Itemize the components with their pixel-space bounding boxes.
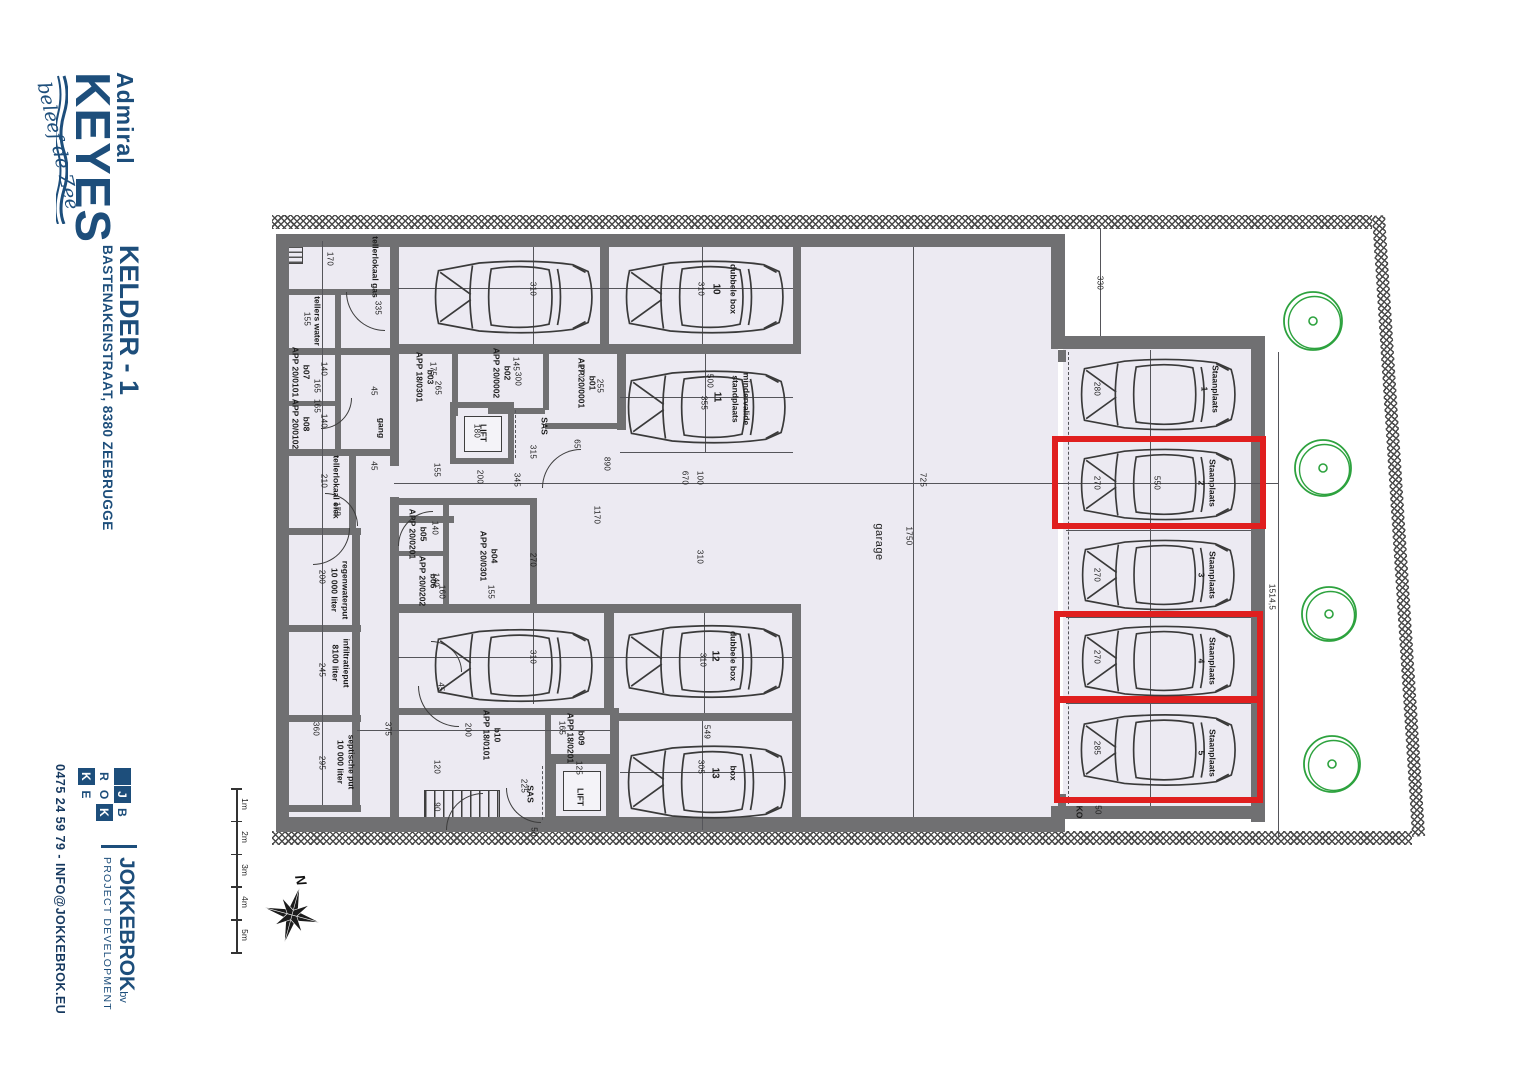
room-label: dubbele box — [728, 631, 739, 681]
wall — [618, 713, 794, 721]
dimension-label: 180 — [473, 424, 482, 438]
dimension-line — [1278, 352, 1279, 838]
wall — [604, 613, 614, 711]
dimension-label: 255 — [596, 379, 605, 393]
dimension-label: 355 — [700, 396, 709, 410]
dimension-label: 170 — [577, 364, 586, 378]
dimension-label: 170 — [326, 252, 335, 266]
room-label: tellerlokaal gas — [370, 236, 381, 297]
wall — [610, 708, 619, 832]
dimension-label: 375 — [384, 722, 393, 736]
room-label: b05 APP 20/0201 — [407, 509, 428, 559]
parking-space-label: Staanplaats 4 — [1196, 637, 1217, 685]
room-label: infiltratieput 8100 liter — [330, 638, 351, 687]
dimension-label: 90 — [433, 802, 442, 812]
wall — [452, 354, 458, 416]
room-label: 10 — [709, 283, 722, 294]
room-label: b09 APP 18/0201 — [565, 713, 586, 763]
tree-icon — [1299, 584, 1359, 649]
dimension-label: 285 — [1093, 741, 1102, 755]
dimension-label: 200 — [318, 570, 327, 584]
tree-icon — [1301, 733, 1363, 800]
parking-space-label: Staanplaats 5 — [1196, 729, 1217, 777]
dashed-line — [542, 766, 543, 820]
dimension-label: 500 — [706, 374, 715, 388]
property-line-hatch-bottom — [272, 831, 1412, 845]
dimension-label: 305 — [697, 760, 706, 774]
dimension-label: 200 — [476, 470, 485, 484]
dimension-label: 345 — [513, 473, 522, 487]
room-label: b03 APP 18/0301 — [414, 352, 435, 402]
dimension-label: 210 — [320, 474, 329, 488]
dimension-label: 1750 — [905, 527, 914, 546]
dimension-label: 155 — [487, 585, 496, 599]
dimension-label: 310 — [529, 650, 538, 664]
dimension-line — [1066, 530, 1251, 531]
property-line-hatch-top — [272, 215, 1372, 229]
dimension-label: 1170 — [593, 506, 602, 524]
parking-space-label: Staanplaats 1 — [1199, 365, 1220, 413]
room-label: regenwaterput 10 000 liter — [329, 561, 350, 620]
wall — [394, 604, 801, 613]
dimension-label: 165 — [558, 721, 567, 735]
dimension-label: 280 — [1093, 382, 1102, 396]
room-label: b08 APP 20/0102 — [290, 399, 311, 449]
room-label: garage — [871, 523, 885, 560]
wall — [1051, 234, 1065, 344]
wall — [1058, 350, 1066, 362]
room-label: gang — [376, 418, 387, 438]
dimension-label: 155 — [433, 463, 442, 477]
dimension-label: 45 — [437, 682, 446, 692]
car-icon — [430, 253, 600, 341]
dimension-label: 725 — [919, 473, 928, 487]
room-label: 12 — [708, 650, 721, 661]
dimension-label: 65 — [573, 439, 582, 449]
dimension-label: 120 — [433, 760, 442, 774]
dashed-line — [515, 410, 516, 458]
wall — [396, 344, 796, 354]
wall — [396, 498, 537, 505]
room-label: KO — [1074, 806, 1085, 819]
room-label: mindervalide standplaats — [730, 373, 751, 425]
wall — [488, 408, 545, 414]
dimension-label: 140 — [431, 521, 440, 535]
dimension-line — [620, 452, 793, 453]
dimension-label: 890 — [603, 457, 612, 471]
car-icon — [430, 622, 600, 709]
dimension-label: 549 — [703, 725, 712, 739]
wall — [545, 423, 621, 429]
dimension-label: 160 — [438, 585, 447, 599]
dimension-label: 295 — [318, 756, 327, 770]
dimension-label: 155 — [303, 312, 312, 326]
dimension-label: 140 — [320, 362, 329, 376]
dimension-label: 270 — [1093, 568, 1102, 582]
room-label: SAS — [539, 417, 550, 434]
room-label: b07 APP 20/0101 — [290, 347, 311, 397]
room-label: b02 APP 20/0002 — [491, 348, 512, 398]
dimension-label: 50 — [530, 827, 539, 837]
parking-space-label: Staanplaats 2 — [1196, 459, 1217, 507]
dimension-label: 145 — [512, 357, 521, 371]
dimension-label: 100 — [696, 471, 705, 485]
room-label: 11 — [710, 392, 723, 403]
room-label: b04 APP 20/0301 — [478, 531, 499, 581]
wall — [792, 613, 801, 830]
wall — [1051, 336, 1264, 349]
room-label: dubbele box — [728, 264, 739, 314]
dimension-label: 360 — [312, 722, 321, 736]
dimension-label: 125 — [575, 761, 584, 775]
dimension-label: 165 — [313, 399, 322, 413]
dimension-label: 50 — [1094, 805, 1103, 815]
dimension-label: 300 — [514, 372, 523, 386]
dimension-label: 270 — [529, 553, 538, 567]
dimension-label: 315 — [529, 445, 538, 459]
dimension-label: 270 — [1093, 476, 1102, 490]
room-label: septische put 10 000 liter — [335, 735, 356, 790]
dimension-label: 245 — [318, 663, 327, 677]
dimension-label: 175 — [429, 362, 438, 376]
room-label: 13 — [708, 767, 721, 778]
room-label: b10 APP 18/0101 — [481, 710, 502, 760]
dimension-label: 310 — [696, 550, 705, 564]
wall — [276, 625, 361, 632]
dimension-label: 200 — [464, 723, 473, 737]
wall — [793, 234, 801, 354]
property-line-hatch-right — [1372, 215, 1425, 837]
dimension-label: 330 — [1096, 276, 1105, 290]
dimension-label: 335 — [374, 301, 383, 315]
wall — [276, 805, 361, 812]
dimension-label: 225 — [520, 779, 529, 793]
dimension-label: 1514,5 — [1268, 584, 1277, 610]
dimension-label: 175 — [333, 502, 342, 516]
room-label: box — [728, 765, 739, 780]
dimension-label: 45 — [370, 386, 379, 396]
wall — [600, 234, 609, 346]
dimension-label: 310 — [697, 282, 706, 296]
car-icon — [623, 739, 793, 825]
wall — [335, 289, 341, 353]
dimension-label: 45 — [370, 461, 379, 471]
tree-icon — [1292, 437, 1354, 504]
tree-icon — [1281, 289, 1345, 358]
dimension-label: 140 — [320, 414, 329, 428]
room-label: LIFT — [575, 788, 586, 806]
floor-plan: tellerlokaal gastellers waterb07 APP 20/… — [0, 0, 1527, 1080]
dimension-label: 270 — [1093, 650, 1102, 664]
dimension-label: 550 — [1153, 476, 1162, 490]
dimension-label: 265 — [434, 381, 443, 395]
parking-space-label: Staanplaats 3 — [1196, 551, 1217, 599]
dimension-label: 670 — [681, 471, 690, 485]
room-label: tellers water — [312, 296, 323, 346]
car-icon — [621, 253, 791, 341]
dimension-label: 310 — [529, 282, 538, 296]
wall — [543, 354, 549, 410]
scanned-floor-plan-sheet: Admiral KEYES beleef de Zee KELDER - 1 B… — [0, 0, 1527, 1080]
dimension-label: 165 — [313, 379, 322, 393]
dimension-label: 310 — [699, 653, 708, 667]
